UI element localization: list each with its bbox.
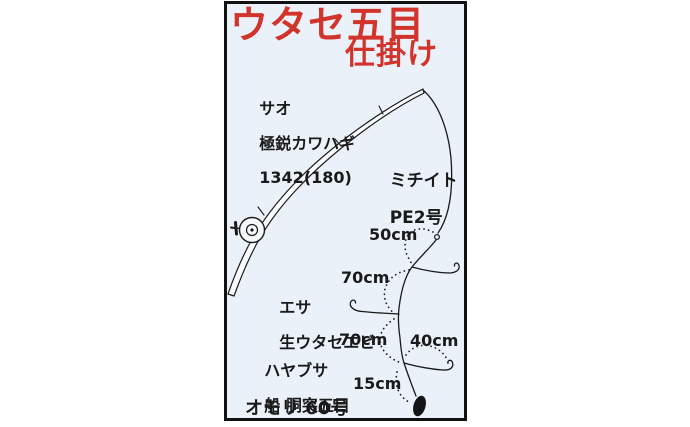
hook-brand-name: ハヤブサ xyxy=(264,361,328,380)
measurement-50cm: 50cm xyxy=(369,226,417,243)
rod-label-name: サオ xyxy=(259,99,291,118)
measurement-15cm: 15cm xyxy=(353,375,401,392)
sinker-label: オモリ 60号 xyxy=(245,399,348,418)
rig-line xyxy=(398,240,436,396)
rod-label-number: 1342(180) xyxy=(259,168,352,187)
hook-branch-3 xyxy=(404,360,453,370)
illustration-canvas: ウタセ五目 仕掛け サオ 極鋭カワハギ 1342(180) ミチイト PE2号 … xyxy=(0,0,690,427)
rod-ferrule-icon xyxy=(258,207,264,215)
rod-label-model: 極鋭カワハギ xyxy=(259,134,355,153)
measurement-40cm: 40cm xyxy=(410,332,458,349)
fishing-reel-icon xyxy=(231,218,265,243)
bait-label-name: エサ xyxy=(279,298,311,317)
rod-label: サオ 極鋭カワハギ 1342(180) xyxy=(237,83,355,204)
hook-branch-1 xyxy=(412,263,459,273)
main-line-label-name: ミチイト xyxy=(390,171,458,191)
diagram-title-line2: 仕掛け xyxy=(345,39,438,71)
sinker-icon xyxy=(411,394,428,417)
